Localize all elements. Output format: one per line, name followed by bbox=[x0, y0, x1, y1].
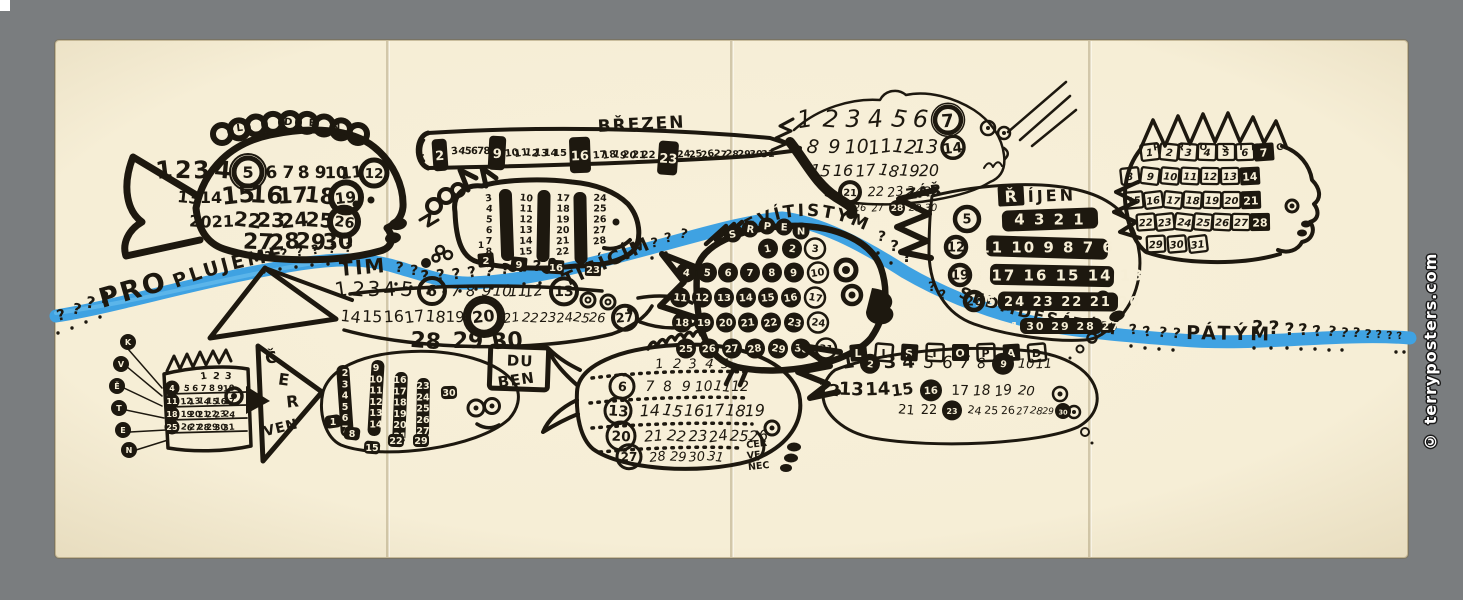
svg-text:8: 8 bbox=[297, 163, 310, 184]
svg-text:E: E bbox=[260, 119, 268, 131]
svg-text:31: 31 bbox=[1190, 239, 1205, 252]
svg-text:19: 19 bbox=[393, 409, 406, 420]
svg-text:8: 8 bbox=[768, 268, 776, 279]
svg-text:15: 15 bbox=[553, 148, 567, 159]
svg-text:7: 7 bbox=[451, 282, 461, 300]
svg-text:20: 20 bbox=[611, 429, 631, 446]
poster-frame: PROPLUJEMETÍMTISÍCÍMDEVÍTISTÝMSEDMDESÁTÝ… bbox=[0, 0, 1463, 600]
svg-text:9: 9 bbox=[1146, 172, 1154, 184]
svg-text:23: 23 bbox=[688, 427, 707, 445]
svg-text:4: 4 bbox=[866, 104, 884, 133]
svg-text:7: 7 bbox=[959, 353, 970, 373]
svg-text:4: 4 bbox=[901, 352, 915, 374]
svg-text:10: 10 bbox=[1018, 357, 1035, 373]
svg-text:3: 3 bbox=[1184, 148, 1192, 159]
svg-text:5: 5 bbox=[342, 402, 349, 413]
svg-text:20: 20 bbox=[189, 211, 213, 232]
svg-text:15: 15 bbox=[810, 160, 832, 181]
svg-text:13: 13 bbox=[608, 402, 630, 420]
svg-text:21: 21 bbox=[502, 310, 520, 327]
svg-text:10: 10 bbox=[1163, 171, 1178, 183]
svg-text:25 24 23 22 21 20: 25 24 23 22 21 20 bbox=[975, 295, 1140, 310]
svg-text:11: 11 bbox=[166, 397, 178, 406]
svg-text:P: P bbox=[763, 221, 771, 233]
svg-text:16: 16 bbox=[783, 292, 798, 305]
svg-text:25: 25 bbox=[593, 204, 606, 215]
svg-text:27: 27 bbox=[1234, 218, 1248, 229]
svg-text:21: 21 bbox=[843, 188, 857, 199]
svg-text:22: 22 bbox=[641, 150, 655, 161]
svg-text:R: R bbox=[285, 391, 299, 411]
svg-text:L: L bbox=[854, 347, 861, 360]
svg-text:13: 13 bbox=[369, 408, 382, 419]
svg-text:15: 15 bbox=[661, 400, 684, 422]
svg-text:25: 25 bbox=[416, 404, 429, 415]
svg-text:7: 7 bbox=[646, 379, 655, 395]
svg-text:NEC: NEC bbox=[748, 460, 770, 473]
svg-text:23: 23 bbox=[1157, 217, 1172, 229]
svg-text:12: 12 bbox=[1203, 172, 1217, 183]
svg-text:23: 23 bbox=[586, 265, 600, 276]
svg-text:18: 18 bbox=[556, 203, 570, 215]
svg-text:3: 3 bbox=[845, 105, 860, 133]
svg-text:24: 24 bbox=[1177, 217, 1192, 230]
svg-text:1: 1 bbox=[1146, 148, 1154, 160]
svg-text:14: 14 bbox=[200, 188, 222, 207]
svg-text:19: 19 bbox=[899, 160, 921, 180]
svg-text:21: 21 bbox=[211, 212, 234, 232]
svg-text:30: 30 bbox=[442, 388, 456, 399]
svg-text:2: 2 bbox=[483, 256, 490, 267]
svg-text:6: 6 bbox=[941, 353, 953, 374]
svg-text:29: 29 bbox=[414, 436, 427, 447]
svg-text:1: 1 bbox=[154, 155, 174, 185]
svg-text:13: 13 bbox=[838, 378, 864, 400]
svg-text:12: 12 bbox=[365, 166, 384, 182]
svg-text:?: ? bbox=[1376, 328, 1383, 341]
svg-text:15: 15 bbox=[890, 379, 915, 401]
svg-text:1: 1 bbox=[478, 241, 484, 251]
svg-text:10: 10 bbox=[223, 384, 236, 395]
svg-text:26: 26 bbox=[965, 295, 983, 310]
svg-text:8: 8 bbox=[465, 282, 476, 301]
svg-text:29: 29 bbox=[1149, 240, 1164, 252]
svg-text:2: 2 bbox=[1165, 148, 1173, 160]
svg-text:9: 9 bbox=[492, 147, 502, 162]
svg-text:8: 8 bbox=[1126, 172, 1134, 184]
svg-text:22: 22 bbox=[867, 185, 884, 201]
svg-text:15: 15 bbox=[760, 292, 775, 304]
svg-text:6: 6 bbox=[617, 380, 628, 396]
svg-text:22: 22 bbox=[555, 246, 569, 259]
svg-text:9: 9 bbox=[373, 363, 380, 374]
svg-text:22: 22 bbox=[666, 426, 687, 446]
svg-text:15: 15 bbox=[519, 246, 533, 258]
svg-text:27: 27 bbox=[1016, 405, 1031, 417]
svg-text:18: 18 bbox=[877, 160, 900, 182]
svg-text:26: 26 bbox=[854, 203, 867, 214]
svg-text:21: 21 bbox=[643, 426, 663, 445]
svg-text:16: 16 bbox=[833, 161, 853, 180]
svg-text:2: 2 bbox=[212, 371, 220, 383]
svg-text:6: 6 bbox=[342, 413, 349, 424]
svg-text:10: 10 bbox=[694, 378, 713, 395]
calendar-artwork: PROPLUJEMETÍMTISÍCÍMDEVÍTISTÝMSEDMDESÁTÝ… bbox=[0, 0, 1463, 600]
svg-text:2: 2 bbox=[174, 156, 192, 185]
svg-text:28: 28 bbox=[891, 204, 904, 214]
svg-text:26: 26 bbox=[589, 311, 606, 327]
svg-text:13: 13 bbox=[717, 293, 731, 304]
svg-text:12: 12 bbox=[523, 281, 544, 301]
svg-text:?: ? bbox=[1386, 329, 1394, 343]
svg-text:29: 29 bbox=[453, 329, 484, 354]
svg-text:?: ? bbox=[395, 260, 405, 277]
svg-text:12: 12 bbox=[695, 293, 709, 305]
svg-text:28: 28 bbox=[592, 235, 607, 248]
svg-text:?: ? bbox=[1364, 327, 1371, 341]
svg-text:6: 6 bbox=[912, 105, 929, 134]
svg-text:15: 15 bbox=[362, 307, 383, 327]
svg-text:23: 23 bbox=[416, 381, 429, 392]
svg-text:7: 7 bbox=[1259, 146, 1268, 160]
svg-text:10: 10 bbox=[844, 135, 869, 158]
svg-text:23: 23 bbox=[540, 311, 557, 326]
svg-text:?: ? bbox=[1284, 320, 1295, 341]
svg-text:3: 3 bbox=[192, 155, 211, 184]
svg-text:27: 27 bbox=[621, 450, 638, 464]
svg-text:31: 31 bbox=[223, 423, 236, 434]
svg-text:8: 8 bbox=[976, 356, 987, 373]
svg-text:30: 30 bbox=[322, 230, 353, 256]
svg-text:7: 7 bbox=[200, 384, 206, 394]
svg-text:24: 24 bbox=[593, 193, 607, 205]
svg-text:18: 18 bbox=[675, 318, 689, 330]
svg-text:15: 15 bbox=[1126, 195, 1141, 207]
svg-text:11 10 9 8 7 6: 11 10 9 8 7 6 bbox=[979, 239, 1115, 257]
svg-text:20: 20 bbox=[719, 318, 733, 330]
svg-text:30: 30 bbox=[688, 450, 705, 466]
svg-text:30: 30 bbox=[491, 328, 524, 355]
svg-text:8: 8 bbox=[209, 384, 215, 394]
svg-text:27: 27 bbox=[724, 343, 739, 355]
svg-text:24: 24 bbox=[223, 409, 236, 420]
svg-text:17: 17 bbox=[1166, 195, 1181, 207]
svg-text:4 3 2 1: 4 3 2 1 bbox=[1014, 211, 1085, 229]
svg-text:22: 22 bbox=[1138, 218, 1153, 230]
svg-text:22: 22 bbox=[763, 317, 778, 330]
svg-text:5: 5 bbox=[485, 214, 492, 225]
svg-text:2: 2 bbox=[351, 277, 366, 302]
svg-text:2: 2 bbox=[435, 149, 445, 165]
svg-text:18: 18 bbox=[393, 398, 407, 409]
svg-text:10: 10 bbox=[810, 267, 825, 280]
svg-text:24: 24 bbox=[967, 403, 983, 418]
svg-text:3: 3 bbox=[368, 277, 381, 301]
svg-text:18: 18 bbox=[972, 382, 991, 399]
svg-text:16: 16 bbox=[549, 263, 563, 274]
svg-text:19: 19 bbox=[556, 214, 569, 225]
svg-text:14: 14 bbox=[942, 140, 963, 158]
svg-text:29: 29 bbox=[670, 450, 687, 466]
svg-text:4: 4 bbox=[1202, 148, 1210, 159]
svg-text:13: 13 bbox=[519, 225, 532, 236]
svg-text:21: 21 bbox=[897, 402, 915, 418]
svg-text:19: 19 bbox=[1205, 196, 1219, 207]
svg-text:17: 17 bbox=[855, 160, 878, 181]
svg-text:28: 28 bbox=[747, 343, 762, 356]
svg-text:27: 27 bbox=[871, 202, 885, 214]
svg-text:25: 25 bbox=[1196, 217, 1211, 229]
svg-text:2: 2 bbox=[822, 104, 840, 133]
svg-text:14: 14 bbox=[865, 378, 891, 400]
svg-text:16: 16 bbox=[684, 401, 705, 420]
svg-text:12: 12 bbox=[816, 379, 841, 401]
svg-text:6: 6 bbox=[724, 268, 732, 279]
svg-text:19: 19 bbox=[445, 308, 464, 326]
svg-text:14: 14 bbox=[739, 293, 753, 305]
svg-text:16: 16 bbox=[1146, 195, 1161, 208]
svg-text:22: 22 bbox=[389, 436, 402, 447]
svg-text:19: 19 bbox=[697, 318, 711, 329]
svg-text:7: 7 bbox=[486, 236, 493, 247]
svg-text:26: 26 bbox=[1215, 218, 1230, 230]
svg-text:14: 14 bbox=[1242, 170, 1258, 184]
svg-text:26: 26 bbox=[1001, 404, 1015, 417]
svg-text:9: 9 bbox=[790, 268, 798, 280]
svg-text:21: 21 bbox=[1243, 194, 1259, 208]
svg-text:16: 16 bbox=[383, 307, 404, 327]
svg-text:19: 19 bbox=[951, 269, 969, 284]
svg-text:11: 11 bbox=[369, 386, 382, 397]
svg-text:17: 17 bbox=[393, 386, 406, 397]
svg-text:10: 10 bbox=[369, 374, 383, 385]
svg-text:21: 21 bbox=[740, 317, 755, 329]
svg-text:8: 8 bbox=[349, 429, 356, 440]
svg-text:18: 18 bbox=[1185, 196, 1200, 208]
svg-text:18 17 16 15 14 13: 18 17 16 15 14 13 bbox=[959, 267, 1144, 285]
svg-text:24: 24 bbox=[416, 392, 430, 403]
svg-text:E: E bbox=[780, 222, 788, 233]
svg-text:14: 14 bbox=[639, 401, 660, 421]
svg-text:3: 3 bbox=[811, 244, 819, 256]
svg-text:22: 22 bbox=[521, 310, 539, 326]
svg-text:14: 14 bbox=[339, 306, 361, 327]
svg-text:18: 18 bbox=[725, 400, 747, 421]
svg-text:DU: DU bbox=[507, 352, 534, 371]
svg-text:20: 20 bbox=[471, 306, 495, 327]
svg-text:4: 4 bbox=[342, 391, 349, 402]
svg-text:18: 18 bbox=[424, 306, 446, 327]
svg-text:6: 6 bbox=[426, 282, 437, 300]
svg-text:2: 2 bbox=[673, 357, 682, 372]
svg-text:5: 5 bbox=[1223, 148, 1230, 159]
svg-text:5: 5 bbox=[962, 213, 971, 228]
svg-text:4: 4 bbox=[169, 384, 175, 393]
svg-text:E: E bbox=[308, 118, 315, 129]
svg-text:17: 17 bbox=[223, 397, 235, 407]
svg-text:24: 24 bbox=[811, 317, 826, 330]
svg-text:23: 23 bbox=[946, 407, 957, 416]
svg-text:6: 6 bbox=[1241, 148, 1248, 159]
svg-text:16: 16 bbox=[924, 386, 939, 398]
svg-text:4: 4 bbox=[382, 277, 397, 302]
svg-text:11: 11 bbox=[1035, 357, 1052, 373]
svg-text:1: 1 bbox=[330, 417, 337, 428]
svg-text:?: ? bbox=[889, 237, 899, 256]
svg-text:9: 9 bbox=[828, 136, 841, 159]
svg-text:6: 6 bbox=[486, 225, 493, 236]
svg-text:?: ? bbox=[99, 288, 109, 308]
svg-text:11: 11 bbox=[867, 135, 894, 160]
svg-text:ÍJEN: ÍJEN bbox=[1027, 185, 1076, 206]
svg-text:13: 13 bbox=[1223, 172, 1237, 183]
svg-text:15: 15 bbox=[365, 443, 378, 454]
svg-text:20: 20 bbox=[1017, 383, 1035, 399]
svg-text:31 30 29 28 27: 31 30 29 28 27 bbox=[1001, 320, 1121, 333]
svg-text:3: 3 bbox=[688, 357, 697, 373]
svg-text:12: 12 bbox=[369, 397, 382, 408]
watermark: © terryposters.com bbox=[1421, 232, 1451, 472]
svg-text:3: 3 bbox=[884, 352, 897, 373]
svg-text:13: 13 bbox=[177, 187, 201, 208]
svg-text:T: T bbox=[116, 404, 122, 413]
svg-text:11: 11 bbox=[673, 292, 688, 304]
svg-text:30: 30 bbox=[1169, 239, 1184, 251]
svg-text:N: N bbox=[332, 122, 340, 133]
svg-text:VE: VE bbox=[746, 449, 761, 461]
svg-text:2: 2 bbox=[342, 368, 349, 379]
svg-text:20: 20 bbox=[1225, 196, 1239, 207]
svg-text:19: 19 bbox=[744, 401, 765, 421]
svg-text:V: V bbox=[118, 360, 125, 369]
svg-text:5: 5 bbox=[703, 268, 711, 280]
svg-text:26: 26 bbox=[748, 426, 768, 445]
svg-text:28: 28 bbox=[1252, 216, 1268, 229]
svg-text:20: 20 bbox=[393, 420, 407, 431]
svg-text:16: 16 bbox=[393, 375, 407, 386]
svg-text:26: 26 bbox=[702, 344, 716, 356]
svg-text:23: 23 bbox=[659, 151, 678, 167]
svg-text:24: 24 bbox=[708, 426, 729, 446]
svg-text:K: K bbox=[125, 338, 132, 347]
svg-text:12: 12 bbox=[519, 214, 533, 226]
svg-text:Ě: Ě bbox=[114, 380, 119, 391]
svg-text:9: 9 bbox=[516, 260, 523, 271]
svg-text:27: 27 bbox=[615, 310, 634, 327]
svg-text:13: 13 bbox=[554, 284, 574, 300]
svg-text:3: 3 bbox=[342, 379, 349, 390]
svg-text:7: 7 bbox=[747, 268, 754, 279]
svg-text:14: 14 bbox=[369, 420, 383, 431]
svg-text:6: 6 bbox=[192, 384, 199, 394]
svg-text:30: 30 bbox=[1058, 408, 1068, 416]
svg-text:16: 16 bbox=[571, 149, 590, 165]
svg-text:22: 22 bbox=[921, 403, 938, 418]
svg-text:?: ? bbox=[1268, 317, 1279, 339]
svg-text:13: 13 bbox=[914, 136, 939, 159]
svg-text:17: 17 bbox=[703, 400, 726, 421]
svg-text:11: 11 bbox=[1183, 172, 1197, 184]
svg-text:9: 9 bbox=[681, 379, 691, 396]
svg-text:20: 20 bbox=[918, 161, 939, 180]
svg-text:?: ? bbox=[1352, 326, 1361, 342]
svg-text:18: 18 bbox=[166, 410, 178, 419]
svg-text:?: ? bbox=[1251, 317, 1263, 340]
svg-text:N: N bbox=[126, 446, 133, 455]
svg-text:25: 25 bbox=[729, 427, 749, 446]
svg-text:7: 7 bbox=[282, 163, 295, 183]
svg-text:28: 28 bbox=[648, 449, 666, 466]
svg-text:31: 31 bbox=[706, 449, 724, 466]
svg-text:25: 25 bbox=[166, 423, 178, 432]
svg-text:26: 26 bbox=[416, 415, 430, 426]
svg-text:7: 7 bbox=[941, 111, 955, 133]
svg-text:N: N bbox=[797, 227, 805, 238]
svg-text:E: E bbox=[120, 426, 125, 435]
svg-text:17: 17 bbox=[951, 383, 969, 399]
svg-text:12: 12 bbox=[947, 241, 965, 256]
svg-text:4: 4 bbox=[704, 357, 714, 373]
svg-text:24: 24 bbox=[556, 310, 574, 326]
svg-text:3: 3 bbox=[224, 371, 231, 382]
svg-text:29: 29 bbox=[1042, 407, 1054, 418]
svg-text:19: 19 bbox=[993, 382, 1013, 401]
svg-text:25: 25 bbox=[984, 404, 999, 418]
svg-text:Ř: Ř bbox=[1004, 187, 1017, 207]
svg-text:17: 17 bbox=[403, 306, 425, 327]
svg-text:D: D bbox=[284, 117, 293, 129]
svg-text:25: 25 bbox=[679, 344, 693, 355]
